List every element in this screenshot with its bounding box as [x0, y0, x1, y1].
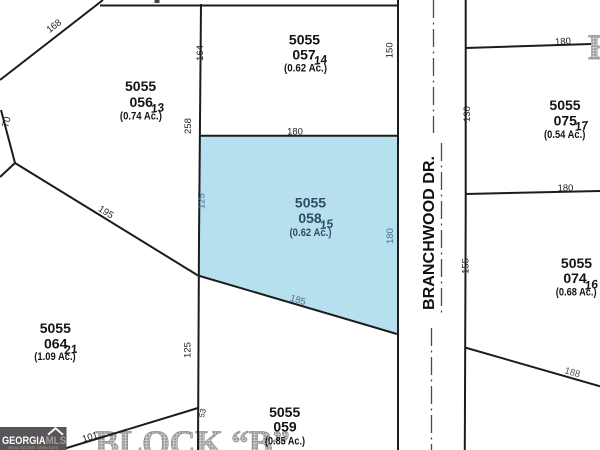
svg-text:180: 180 [557, 183, 573, 194]
svg-text:5055: 5055 [289, 31, 320, 47]
svg-text:155: 155 [461, 258, 472, 274]
svg-text:125: 125 [183, 342, 194, 358]
svg-text:21: 21 [62, 342, 78, 358]
svg-text:130: 130 [462, 106, 473, 122]
svg-text:180: 180 [287, 127, 303, 138]
svg-text:5055: 5055 [125, 78, 156, 94]
svg-text:258: 258 [183, 118, 194, 134]
svg-text:BRANCHWOOD DR.: BRANCHWOOD DR. [421, 156, 438, 310]
svg-text:16: 16 [584, 277, 599, 293]
svg-text:5055: 5055 [40, 320, 71, 336]
svg-text:150: 150 [384, 42, 395, 58]
svg-text:14: 14 [313, 52, 328, 68]
svg-text:REAL ESTATE SERVICES: REAL ESTATE SERVICES [8, 446, 58, 450]
svg-text:(0.85 Ac.): (0.85 Ac.) [265, 436, 305, 448]
svg-text:5055: 5055 [295, 194, 326, 210]
svg-text:125: 125 [197, 193, 208, 209]
svg-text:13: 13 [150, 100, 165, 116]
svg-text:059: 059 [273, 419, 297, 435]
svg-text:5055: 5055 [561, 255, 592, 271]
svg-text:E: E [588, 27, 600, 67]
svg-text:BLOCK “B”: BLOCK “B” [95, 423, 290, 450]
svg-text:(0.62 Ac.): (0.62 Ac.) [290, 227, 332, 239]
svg-text:5055: 5055 [549, 97, 580, 113]
svg-text:180: 180 [555, 36, 572, 48]
svg-text:180: 180 [385, 228, 396, 244]
svg-text:164: 164 [195, 45, 206, 61]
